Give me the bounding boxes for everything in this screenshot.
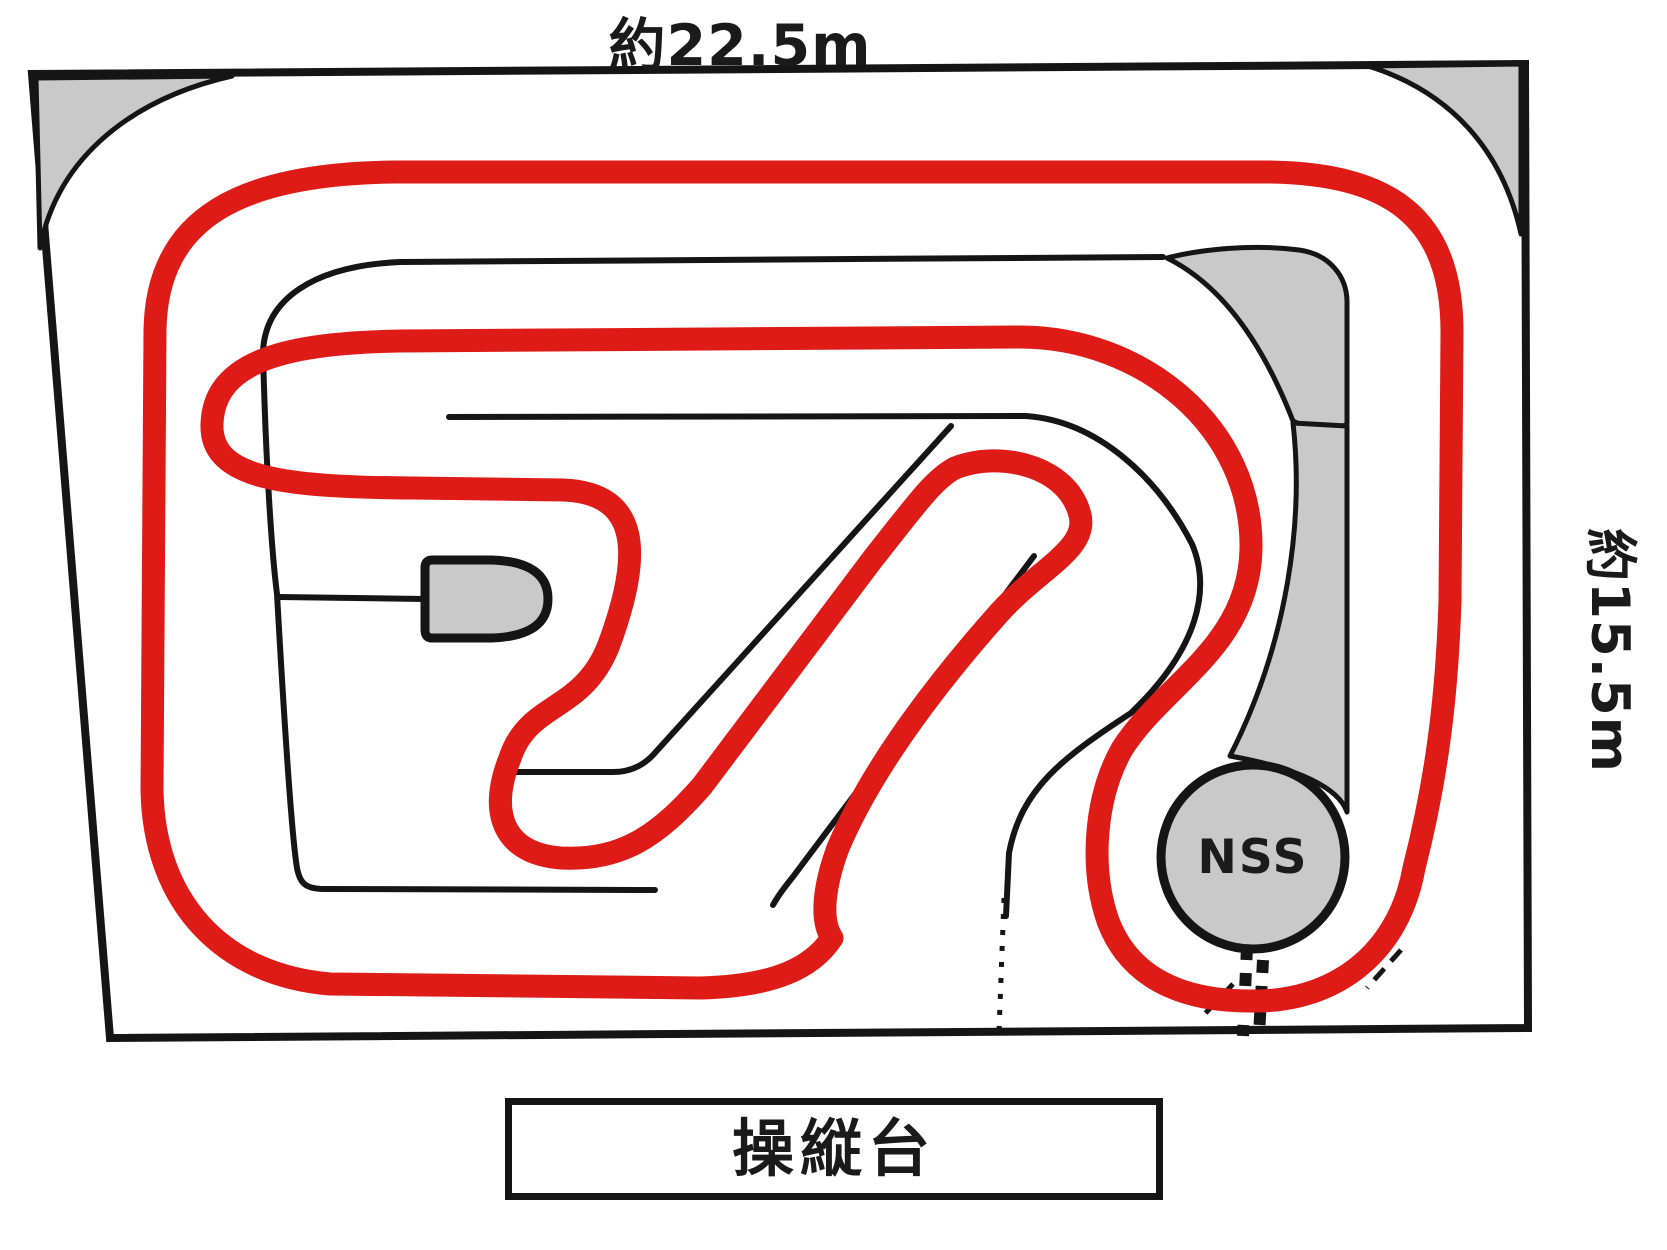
nss-marker-label: NSS: [1183, 830, 1323, 885]
course-width-label: 約22.5m: [540, 0, 940, 82]
control-platform-box: 操縦台: [505, 1098, 1163, 1200]
course-height-label: 約15.5m: [1576, 478, 1652, 823]
course-diagram: 約22.5m 約15.5m NSS 操縦台: [0, 0, 1667, 1250]
course-map-drawing: [0, 0, 1667, 1250]
wall-pill-connector: [279, 597, 424, 599]
offtrack-pill-obstacle: [425, 560, 548, 638]
